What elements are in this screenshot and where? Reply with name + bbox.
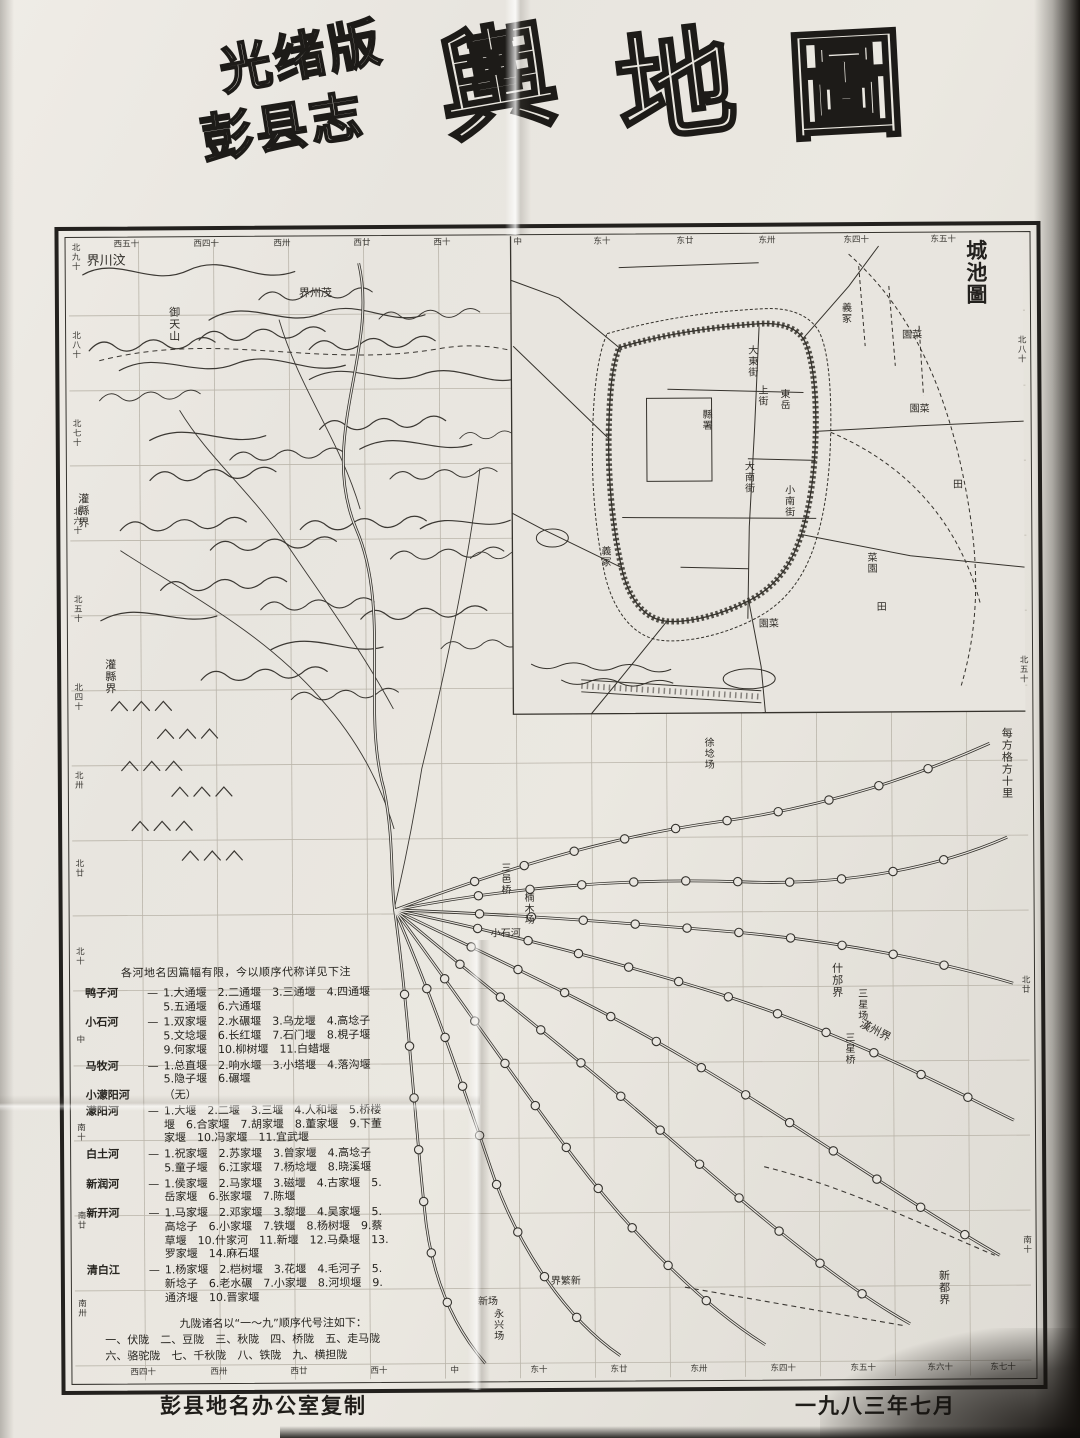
inset-title: 城池圖: [964, 239, 989, 305]
weir-list: 1.马家堰 2.邓家堰 3.黎堰 4.吴家堰 5.高埝子 6.小家堰 7.铁堰 …: [164, 1205, 388, 1261]
inset-label-yamen: 縣署: [700, 409, 712, 431]
grid-tick: 东廿: [677, 237, 694, 246]
weir-list: 1.双家堰 2.水碾堰 3.乌龙堰 4.高埝子 5.文埝堰 6.长红堰 7.石门…: [163, 1014, 387, 1057]
legend-row: 濛阳河—1.大堰 2.二堰 3.三堰 4.人和堰 5.桥楼堰 6.合家堰 7.胡…: [86, 1103, 388, 1146]
map-frame: 西五十 西四十 西卅 西廿 西十 中 东十 东廿 东卅 东四十 东五十 北九十 …: [54, 221, 1047, 1395]
legend-row: 小濛阳河（无）: [86, 1087, 388, 1103]
grid-tick: 东卅: [690, 1365, 707, 1374]
river-label: 小石河: [491, 928, 521, 940]
place-label: 三邑桥: [498, 862, 510, 895]
grid-tick: 北五十: [1019, 655, 1028, 684]
inset-label-garden: 園菜: [902, 330, 922, 342]
boundary-label-shifang: 什邡界: [830, 962, 843, 998]
footer-publisher: 彭县地名办公室复制: [160, 1390, 367, 1420]
grid-tick: 西卅: [210, 1368, 227, 1377]
legend-row: 新开河—1.马家堰 2.邓家堰 3.黎堰 4.吴家堰 5.高埝子 6.小家堰 7…: [86, 1205, 388, 1262]
river-name: 马牧河: [86, 1059, 148, 1087]
river-name: 小濛阳河: [86, 1088, 148, 1102]
grid-tick: 东十: [530, 1366, 547, 1375]
grid-tick: 东四十: [844, 236, 870, 245]
grid-tick: 北七十: [72, 419, 81, 448]
grid-tick: 东五十: [931, 236, 957, 245]
grid-tick: 北八十: [71, 331, 80, 360]
river-name: 鸭子河: [85, 986, 147, 1014]
inset-label-garden: 園菜: [759, 619, 779, 631]
place-label: 楠木场: [522, 892, 534, 925]
inset-label-garden: 菜園: [864, 552, 876, 574]
legend-row: 白土河—1.祝家堰 2.苏家堰 3.曾家堰 4.高埝子 5.童子堰 6.江家堰 …: [86, 1146, 388, 1175]
legend-row: 清白江—1.杨家堰 2.桤树堰 3.花堰 4.毛河子 5.新埝子 6.老水碾 7…: [87, 1262, 389, 1305]
title-edition-line2: 彭县志: [197, 90, 368, 167]
grid-tick: 东五十: [850, 1364, 876, 1373]
river-name: 新开河: [86, 1206, 148, 1261]
grid-tick: 南十: [1022, 1235, 1031, 1254]
legend-row: 小石河—1.双家堰 2.水碾堰 3.乌龙堰 4.高埝子 5.文埝堰 6.长红堰 …: [85, 1014, 387, 1057]
title-char-yu: 輿: [429, 14, 566, 151]
legend-header: 各河地名因篇幅有限，今以顺序代称详见下注: [85, 965, 387, 981]
river-name: 白土河: [86, 1147, 148, 1175]
boundary-label-guanxian: 灌縣界: [76, 493, 89, 529]
inset-label-street: 小南街: [782, 485, 794, 518]
grid-tick: 南廿: [76, 1211, 85, 1230]
inset-label-graves: 義冢: [598, 546, 610, 568]
weir-list: （无）: [164, 1087, 388, 1102]
grid-tick: 东十: [594, 238, 611, 247]
river-name: 清白江: [87, 1263, 149, 1305]
boundary-label-wenchuan: 界川汶: [87, 255, 126, 270]
weir-list: 1.大通堰 2.二通堰 3.三通堰 4.四通堰 5.五通堰 6.六通堰: [163, 985, 387, 1014]
weir-legend: 各河地名因篇幅有限，今以顺序代称详见下注 鸭子河—1.大通堰 2.二通堰 3.三…: [85, 965, 389, 1307]
dash: —: [148, 1177, 164, 1205]
mountain-label: 御天山: [167, 306, 180, 342]
weir-list: 1.祝家堰 2.苏家堰 3.曾家堰 4.高埝子 5.童子堰 6.江家堰 7.杨埝…: [164, 1146, 388, 1175]
footer-date: 一九八三年七月: [795, 1390, 956, 1420]
grid-tick: 北九十: [71, 243, 80, 272]
dash: —: [148, 1206, 164, 1261]
grid-tick: 东七十: [990, 1363, 1016, 1372]
grid-tick: 北五十: [73, 595, 82, 624]
grid-tick: 东六十: [927, 1364, 953, 1373]
dash: [148, 1088, 164, 1102]
dash: —: [148, 1104, 164, 1145]
grid-tick: 西四十: [194, 240, 220, 249]
grid-tick: 北卅: [74, 771, 83, 790]
grid-tick: 中: [75, 1035, 84, 1045]
weir-list: 1.侯家堰 2.马家堰 3.磁堰 4.古家堰 5.岳家堰 6.张家堰 7.陈堰: [164, 1176, 388, 1205]
grid-tick: 北八十: [1017, 335, 1026, 364]
map-title-calligraphy: 光绪版 彭县志 輿 地 圖: [195, 0, 924, 231]
place-label: 三星场: [855, 988, 867, 1021]
grid-tick: 北十: [75, 947, 84, 966]
inset-label-temple: 東岳: [777, 389, 789, 411]
grid-tick: 西四十: [130, 1368, 156, 1377]
boundary-label-maozhou: 界州茂: [299, 287, 332, 300]
weir-list: 1.大堰 2.二堰 3.三堰 4.人和堰 5.桥楼堰 6.合家堰 7.胡家堰 8…: [164, 1103, 388, 1146]
grid-tick: 东廿: [610, 1366, 627, 1375]
inset-label-street: 大南街: [742, 461, 754, 494]
mountain-ridges: [83, 263, 567, 861]
dash: —: [149, 1263, 165, 1304]
grid-tick: 西十: [370, 1367, 387, 1376]
legend-row: 马牧河—1.总直堰 2.响水堰 3.小塔堰 4.落沟堰 5.隐子堰 6.碾堰: [86, 1058, 388, 1087]
inset-label-field: 田: [953, 479, 963, 491]
dash: —: [148, 1147, 164, 1175]
dash: —: [147, 986, 163, 1014]
boundary-label-guanxian: 灌縣界: [103, 659, 116, 695]
city-inset-map: [511, 233, 1026, 714]
title-char-tu: 圖: [784, 24, 908, 148]
nine-ridges-note: 九陇诸名以“一～九”顺序代号注如下： 一、伏陇 二、豆陇 三、秋陇 四、桥陇 五…: [105, 1315, 441, 1365]
grid-tick: 西廿: [354, 239, 371, 248]
dash: —: [148, 1059, 164, 1087]
county-boundary-dashed: [99, 345, 579, 381]
grid-tick: 东四十: [770, 1365, 796, 1374]
inset-label-street: 上街: [755, 385, 767, 407]
grid-tick: 西廿: [290, 1367, 307, 1376]
title-char-di: 地: [610, 21, 742, 153]
place-label: 三星桥: [842, 1032, 854, 1065]
river-name: 濛阳河: [86, 1104, 148, 1146]
inset-label-field: 田: [877, 602, 887, 614]
scale-note: 每方格方十里: [1000, 727, 1013, 799]
legend-row: 鸭子河—1.大通堰 2.二通堰 3.三通堰 4.四通堰 5.五通堰 6.六通堰: [85, 985, 387, 1014]
place-label: 永兴场: [491, 1308, 503, 1341]
grid-tick: 南卅: [77, 1299, 86, 1318]
grid-tick: 北四十: [73, 683, 82, 712]
grid-tick: 西十: [434, 239, 451, 248]
scanned-gazetteer-map-photo: { "photo": { "paper_color": "#e8e5df", "…: [0, 0, 1080, 1438]
grid-tick: 中: [450, 1367, 459, 1376]
grid-tick: 南十: [76, 1123, 85, 1142]
place-label: 新场: [478, 1296, 498, 1308]
dash: —: [147, 1016, 163, 1057]
river-name: 新润河: [86, 1177, 148, 1205]
weir-list: 1.杨家堰 2.桤树堰 3.花堰 4.毛河子 5.新埝子 6.老水碾 7.小家堰…: [165, 1262, 389, 1305]
inset-label-street: 大東街: [745, 345, 757, 378]
boundary-label-xindu: 新都界: [937, 1270, 950, 1306]
river-name: 小石河: [85, 1016, 147, 1058]
title-edition-line1: 光绪版: [215, 16, 387, 99]
grid-tick: 西五十: [114, 241, 140, 250]
legend-row: 新润河—1.侯家堰 2.马家堰 3.磁堰 4.古家堰 5.岳家堰 6.张家堰 7…: [86, 1176, 388, 1205]
inset-label-garden: 園菜: [910, 404, 930, 416]
weir-list: 1.总直堰 2.响水堰 3.小塔堰 4.落沟堰 5.隐子堰 6.碾堰: [164, 1058, 388, 1087]
ridges-line2: 六、骆驼陇 七、千秋陇 八、铁陇 九、横担陇: [105, 1347, 441, 1365]
grid-tick: 西卅: [274, 240, 291, 249]
grid-tick: 北廿: [74, 859, 83, 878]
grid-tick: 中: [514, 238, 523, 247]
place-label: 徐埝场: [702, 737, 714, 770]
inset-label-graves: 義冢: [839, 302, 851, 324]
grid-tick: 北廿: [1021, 975, 1030, 994]
boundary-label-xinfan: 界繁新: [551, 1276, 581, 1288]
grid-tick: 东卅: [759, 237, 776, 246]
